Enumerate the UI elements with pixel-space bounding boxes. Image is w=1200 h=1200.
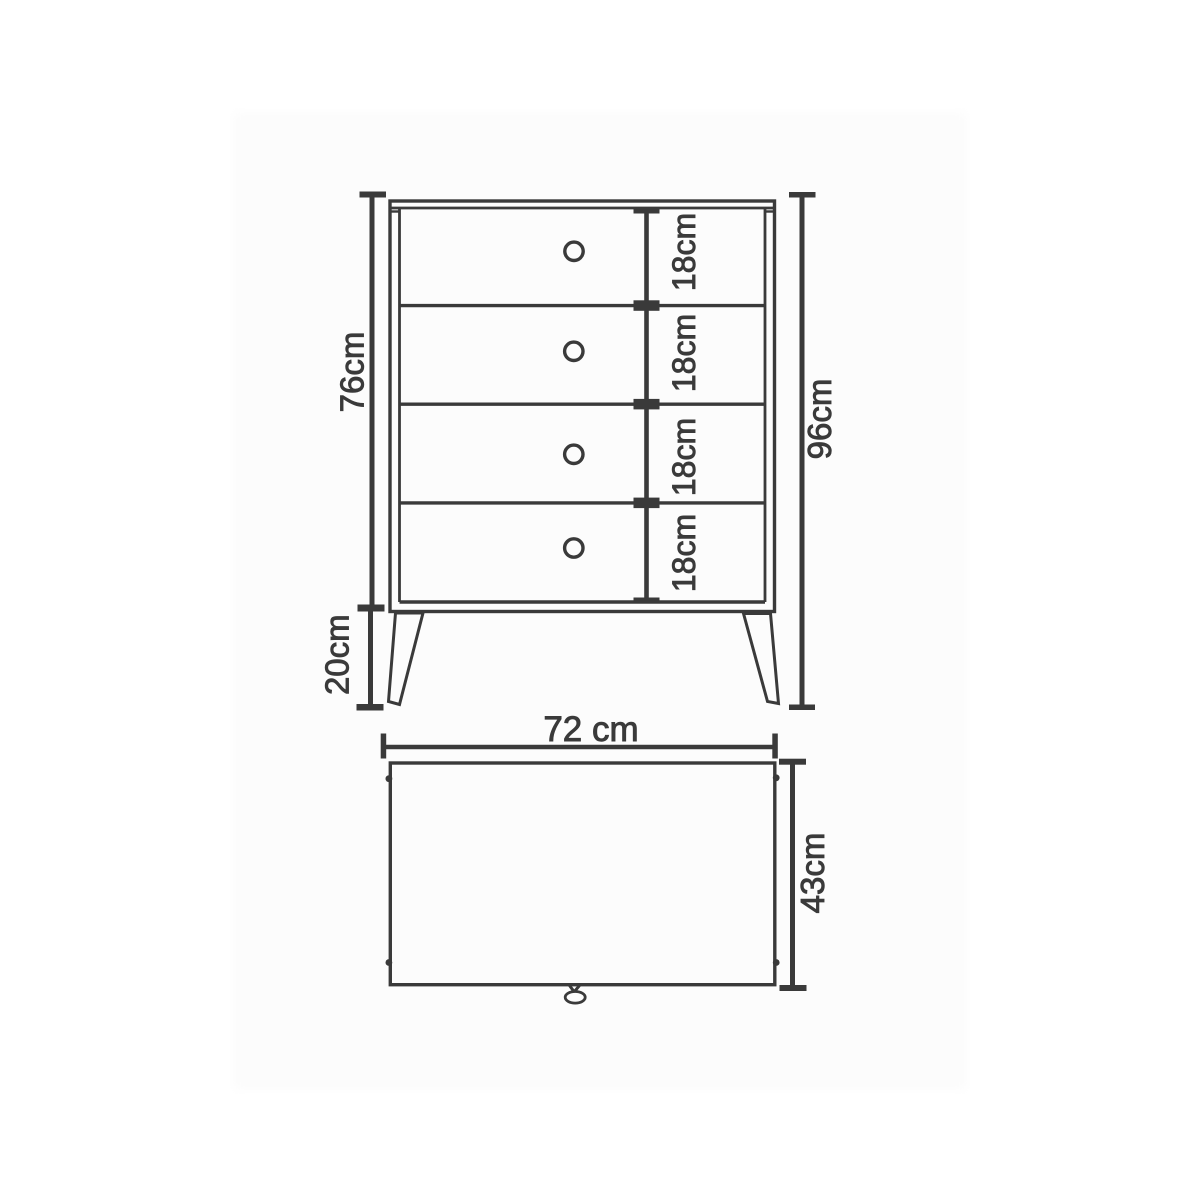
svg-text:18cm: 18cm <box>666 418 702 496</box>
svg-text:76cm: 76cm <box>334 332 371 413</box>
svg-text:20cm: 20cm <box>319 614 356 695</box>
svg-text:18cm: 18cm <box>666 514 702 592</box>
svg-text:72 cm: 72 cm <box>543 710 638 749</box>
svg-text:96cm: 96cm <box>801 379 838 460</box>
svg-text:18cm: 18cm <box>666 314 702 392</box>
svg-text:43cm: 43cm <box>794 833 831 914</box>
svg-text:18cm: 18cm <box>666 213 702 291</box>
